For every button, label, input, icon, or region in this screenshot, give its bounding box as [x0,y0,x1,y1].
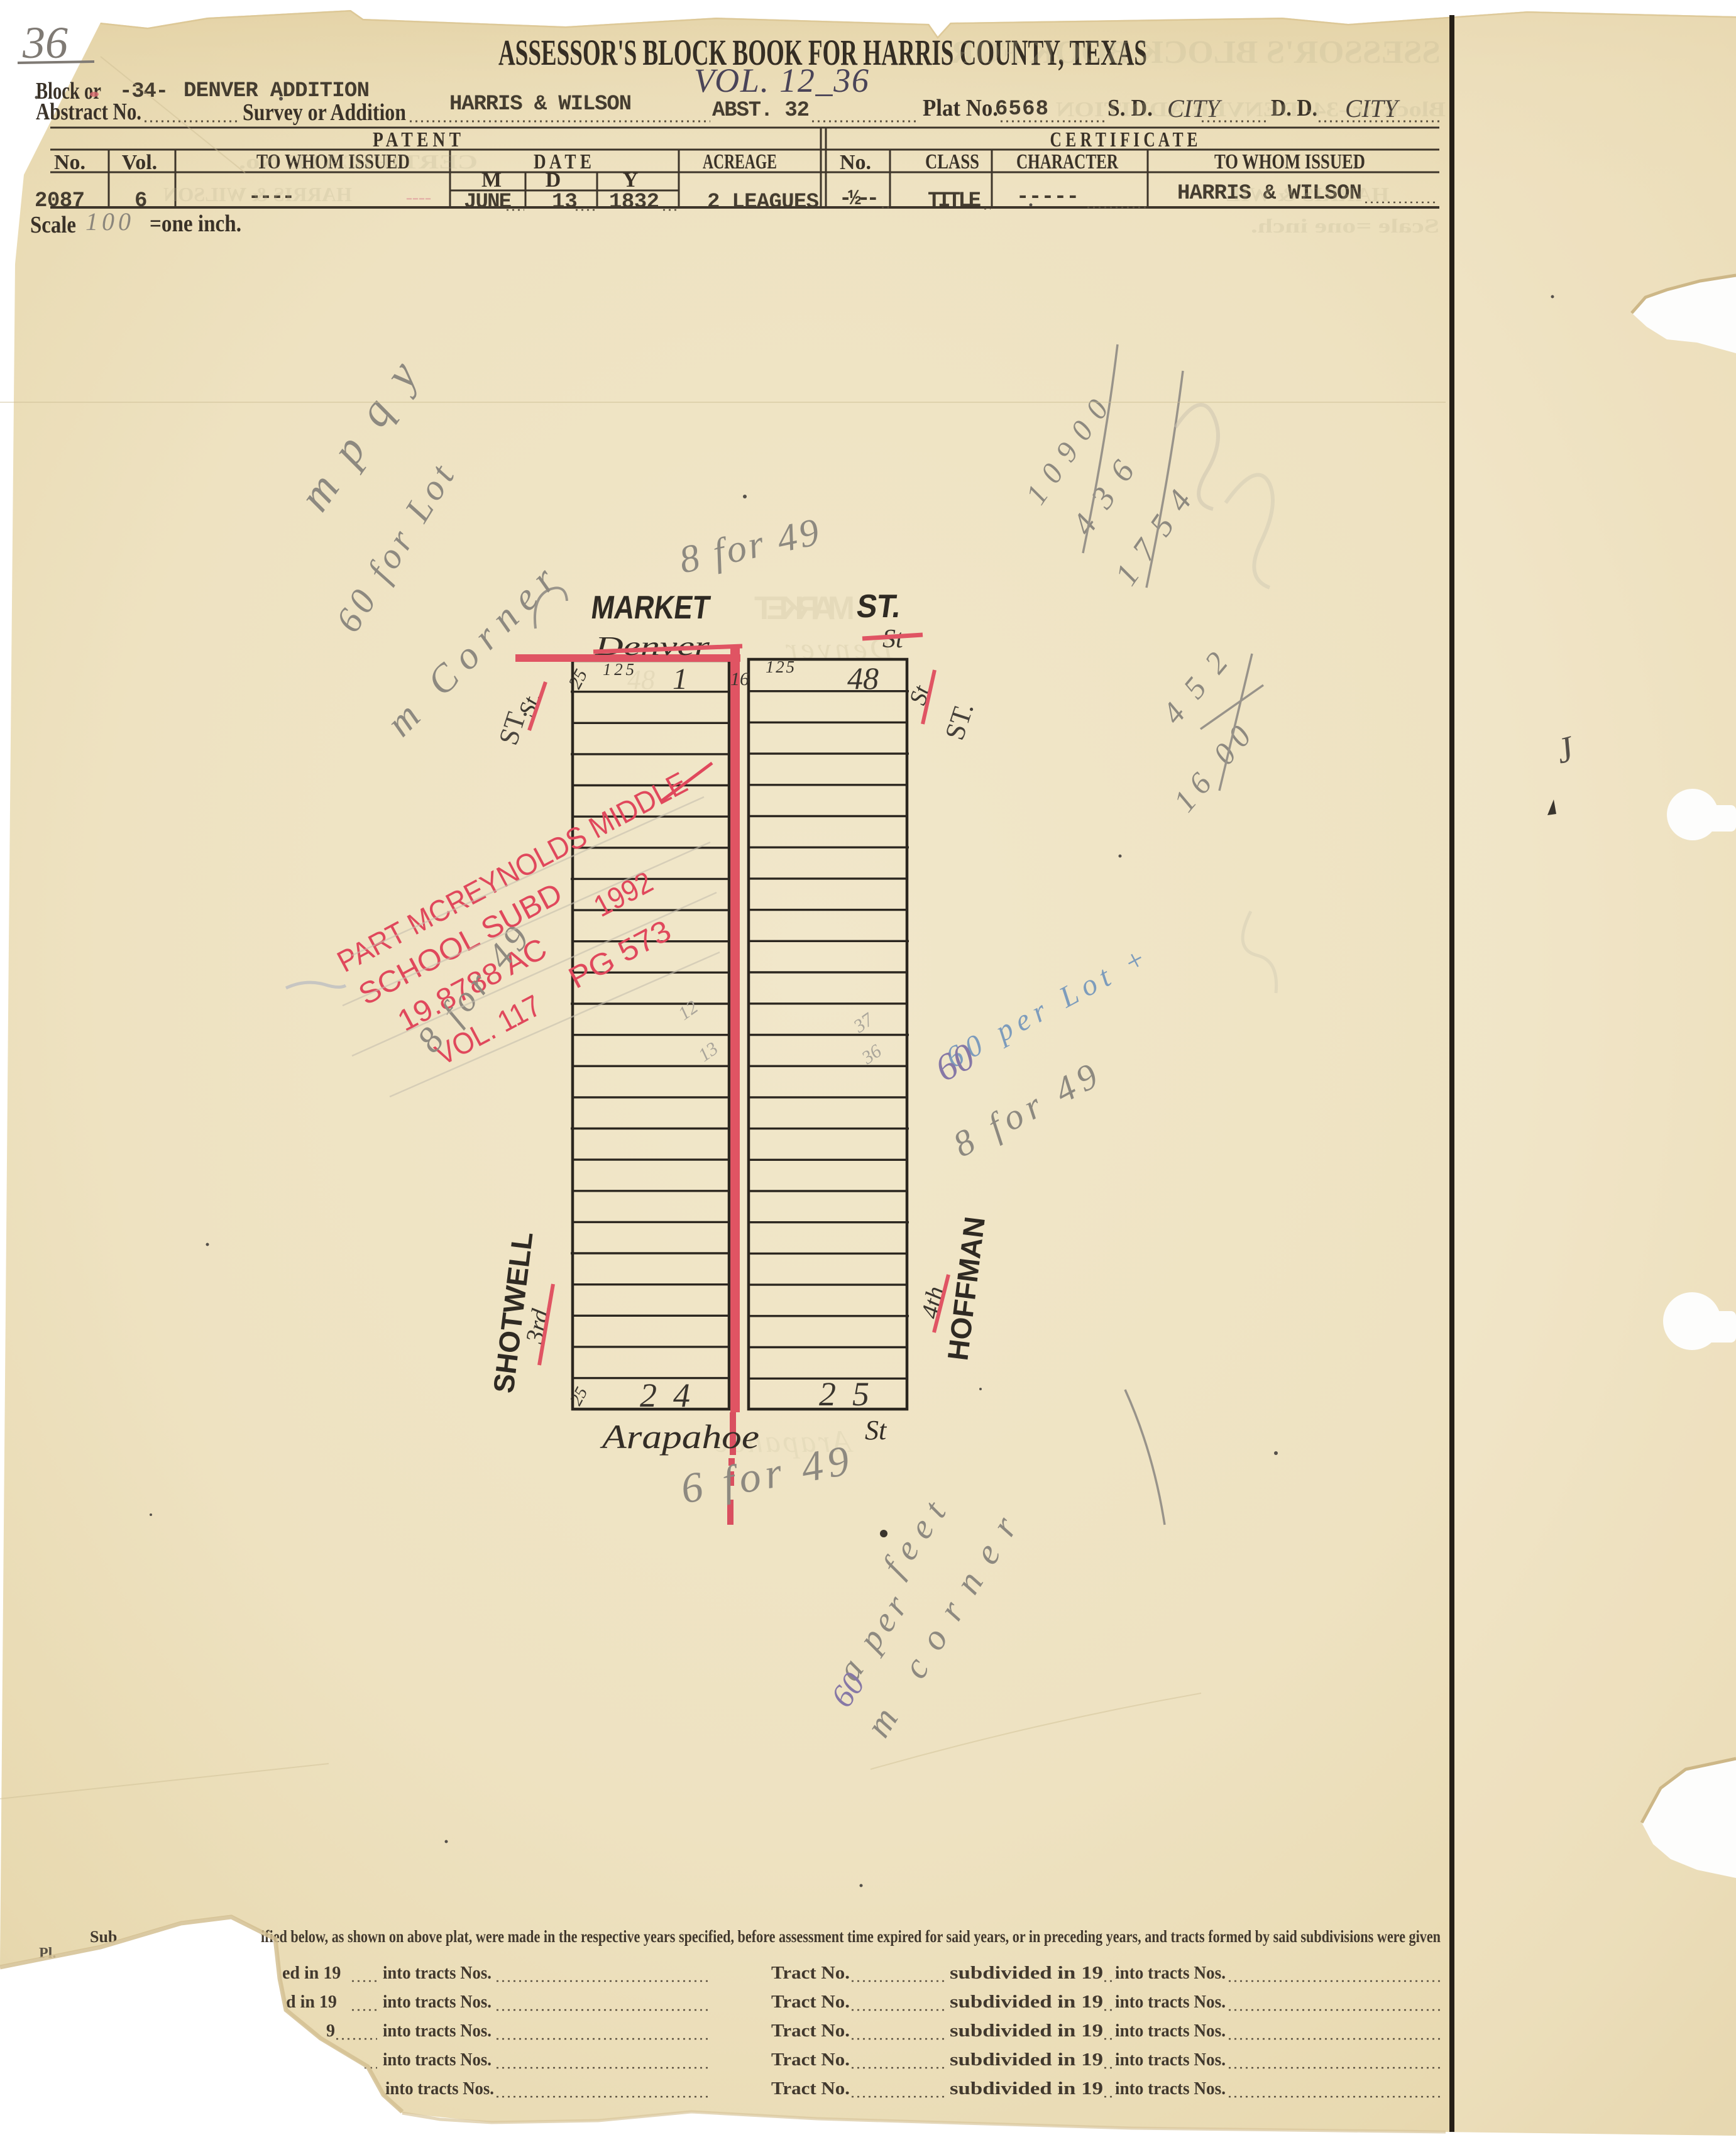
svg-text:-----: ----- [1016,185,1079,209]
svg-text:Plat No.: Plat No. [923,95,998,121]
svg-text:6568: 6568 [995,97,1048,121]
svg-text:subdivided in 19: subdivided in 19 [950,2050,1103,2070]
svg-text:13: 13 [552,190,578,214]
svg-text:1832: 1832 [609,190,659,214]
svg-text:Tract No.: Tract No. [771,1963,850,1983]
svg-text:into tracts Nos.: into tracts Nos. [383,1992,492,2012]
svg-text:subdivided in 19: subdivided in 19 [950,1963,1103,1983]
svg-text:HARRIS & WILSON: HARRIS & WILSON [163,183,352,206]
svg-text:ified below, as shown on above: ified below, as shown on above plat, wer… [261,1927,1441,1946]
svg-text:subdivided in 19: subdivided in 19 [950,1992,1103,2012]
svg-text:Vol.: Vol. [122,151,157,174]
svg-text:D A T E: D A T E [534,150,591,173]
svg-text:into tracts Nos.: into tracts Nos. [383,2021,492,2041]
svg-text:into tracts Nos.: into tracts Nos. [1115,2079,1226,2099]
svg-text:VOL. 12_36: VOL. 12_36 [694,62,869,99]
svg-text:Scale =one inch.: Scale =one inch. [1251,214,1439,237]
svg-text:SSESSOR'S BLOCK BOOK FOR: SSESSOR'S BLOCK BOOK FOR [950,35,1441,70]
svg-text:d in 19: d in 19 [286,1992,337,2012]
svg-text:P A T E N T: P A T E N T [373,128,461,151]
svg-text:Tract No.: Tract No. [771,2050,850,2070]
svg-text:Scale: Scale [30,212,76,238]
svg-text:into tracts Nos.: into tracts Nos. [1115,2050,1226,2070]
svg-text:subdivided in 19: subdivided in 19 [950,2021,1103,2041]
svg-text:1: 1 [673,662,688,696]
svg-text:Abstract No.: Abstract No. [36,99,141,125]
svg-text:ST.: ST. [854,588,903,625]
svg-text:125: 125 [766,657,794,676]
svg-text:MARKET: MARKET [589,590,712,626]
svg-text:2087: 2087 [35,189,85,213]
svg-text:Y: Y [623,168,639,192]
svg-text:subdivided in 19: subdivided in 19 [950,2079,1103,2099]
svg-text:CHARACTER: CHARACTER [1016,150,1118,173]
svg-text:TITLE: TITLE [928,189,981,213]
svg-text:Tract No.: Tract No. [771,2021,850,2041]
svg-text:ACREAGE: ACREAGE [703,150,777,173]
svg-text:Survey or Addition: Survey or Addition [243,99,406,126]
svg-text:48: 48 [847,661,879,696]
svg-text:2 LEAGUES: 2 LEAGUES [707,190,819,214]
svg-text:St: St [865,1415,887,1446]
svg-text:ABST. 32: ABST. 32 [712,99,810,123]
svg-text:D: D [546,168,561,192]
svg-text:MARKET: MARKET [754,590,855,627]
svg-text:9: 9 [326,2021,335,2041]
svg-text:=one inch.: =one inch. [150,211,241,237]
svg-text:JUNE: JUNE [464,190,512,214]
svg-text:TO WHOM ISSUED: TO WHOM ISSUED [1214,150,1365,173]
svg-text:M: M [481,168,502,192]
svg-text:36: 36 [22,18,68,68]
svg-text:CLASS: CLASS [925,150,979,173]
svg-text:-½--: -½-- [839,187,879,211]
svg-text:125: 125 [603,660,634,679]
svg-text:CERTIFICATE No.: CERTIFICATE No. [239,150,478,173]
svg-text:Tract No.: Tract No. [771,1992,850,2012]
svg-text:into tracts Nos.: into tracts Nos. [1115,2021,1226,2041]
svg-text:No.: No. [54,151,85,174]
svg-text:Arapahoe: Arapahoe [600,1418,759,1456]
svg-text:into tracts Nos.: into tracts Nos. [383,1963,492,1983]
svg-text:into tracts Nos.: into tracts Nos. [1115,1963,1226,1983]
svg-text:C E R T I F I C A T E: C E R T I F I C A T E [1050,128,1198,151]
svg-text:HARRIS & WIL: HARRIS & WIL [1226,183,1389,206]
svg-text:100: 100 [85,207,131,236]
svg-text:HARRIS & WILSON: HARRIS & WILSON [449,92,632,116]
svg-text:into tracts Nos.: into tracts Nos. [385,2079,494,2099]
svg-text:6: 6 [135,189,147,213]
svg-text:16: 16 [730,669,749,689]
svg-text:ed in 19: ed in 19 [282,1963,341,1983]
svg-text:into tracts Nos.: into tracts Nos. [383,2050,492,2070]
svg-text:Tract No.: Tract No. [771,2079,850,2099]
svg-text:----: ---- [404,189,434,210]
svg-text:into tracts Nos.: into tracts Nos. [1115,1992,1226,2012]
svg-text:No.: No. [840,151,871,174]
svg-text:Block or -34- DENVER ADDITION: Block or -34- DENVER ADDITION [1055,98,1446,121]
